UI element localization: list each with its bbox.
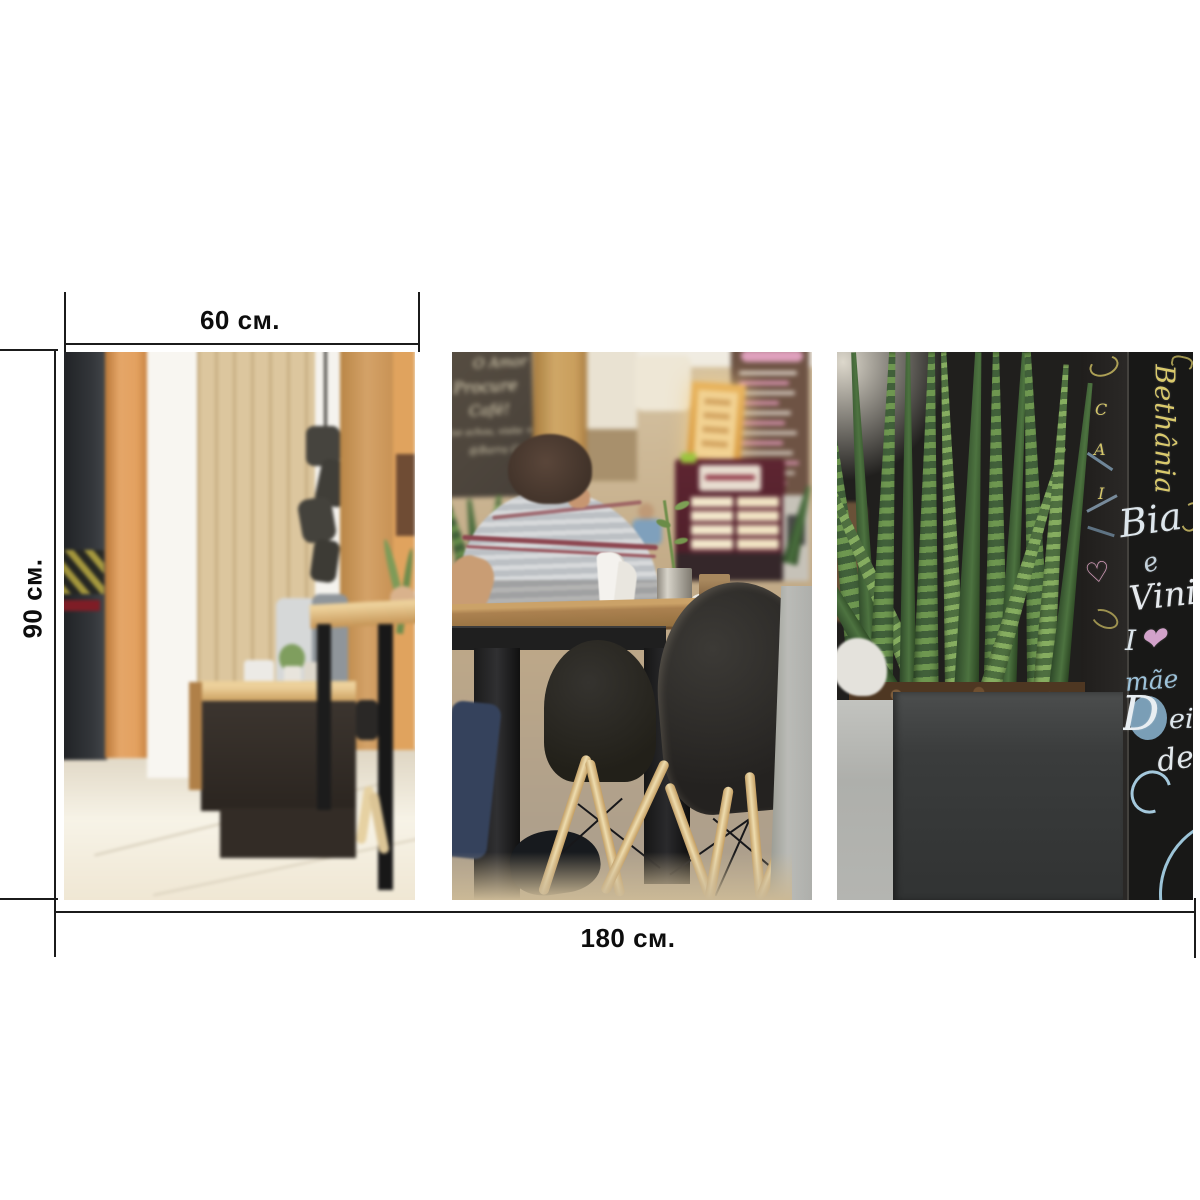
canvas-panel-left [64, 352, 415, 900]
chalk-name-bia: Bia [1116, 494, 1184, 546]
red-rail [64, 600, 100, 611]
plant-sprig-leaflet [674, 537, 689, 546]
chalk-love-heart: ❤ [1137, 619, 1168, 660]
chalk-side-heart: ♡ [1083, 554, 1112, 590]
canvas-panel-center: O Amor Procure Café! (se achou, visite +… [452, 352, 812, 900]
chalk-partial-suffix: ei [1169, 704, 1193, 735]
orange-pillar [105, 352, 147, 758]
plant-sprig-leaflet [673, 499, 690, 512]
chalk-big-initial: D [1121, 686, 1159, 742]
dim-top-line [64, 343, 420, 345]
panel-width-label: 60 см. [150, 305, 330, 336]
dim-bottom-line [54, 911, 1196, 913]
total-width-label: 180 см. [543, 923, 713, 954]
plant-leaf [899, 352, 917, 712]
eames-chair-back [544, 640, 656, 782]
table-frame-bar [452, 626, 666, 650]
plant-sprig-stem [663, 500, 676, 574]
dim-top-tick-left [64, 292, 66, 352]
bench-side-wood [189, 682, 202, 790]
bench-base-step [220, 808, 356, 858]
table-leg [317, 624, 331, 810]
bench-base [201, 701, 356, 811]
bench-wood-top [198, 681, 356, 703]
chalk-side-letter-c: C [1095, 400, 1107, 419]
chalk-name-vini: Vini [1127, 573, 1193, 620]
chair-seat-edge [356, 700, 378, 740]
panel-height-label: 90 см. [18, 514, 49, 684]
dim-top-tick-right [418, 292, 420, 352]
dim-left-line [54, 349, 56, 957]
table-foreground [452, 352, 812, 900]
dim-left-tick-top [0, 349, 58, 351]
art-cable [324, 352, 327, 434]
planter-left-face [837, 700, 895, 900]
plant-leaf [912, 352, 945, 712]
chalk-love-i: I [1125, 624, 1136, 657]
floor-glow [452, 852, 792, 900]
brown-frame [396, 454, 415, 536]
chalk-name-vertical: Bethânia [1149, 355, 1180, 505]
triptych-product-mockup: 60 см. 90 см. 180 см. [0, 0, 1200, 1200]
dim-bottom-tick-right [1194, 898, 1196, 958]
hazard-stripes [64, 550, 104, 594]
dim-left-tick-bottom [0, 898, 58, 900]
canvas-panel-right: C A I ♡ Bethânia Bia e Vini I ❤ mãe D ei… [837, 352, 1193, 900]
cafe-entry-scene [64, 352, 415, 900]
planter-front-face [893, 692, 1123, 900]
